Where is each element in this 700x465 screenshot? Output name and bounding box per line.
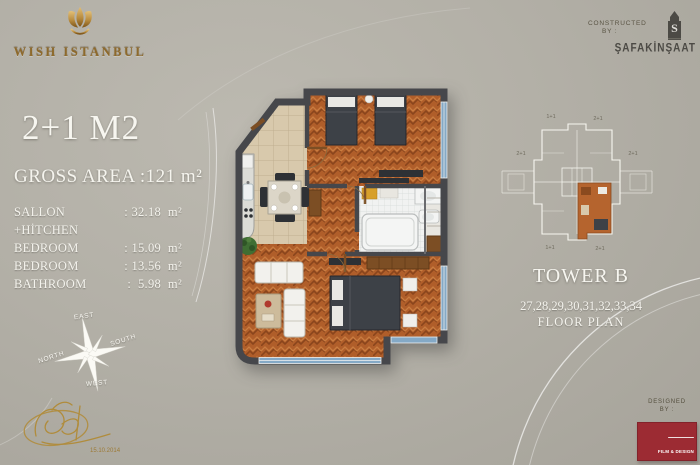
spec-row: BEDROOM : 15.09 m² [14,239,182,257]
spec-row: SALLON +HİTCHEN : 32.18 m² [14,203,182,239]
designer-logo: FILM & DESIGN [637,422,697,461]
constructed-by: CONSTRUCTED BY : [588,20,646,36]
keyplan-unit-label: 2+1 [593,116,602,122]
room-area: : 13.56 m² [124,257,182,275]
designed-by: DESIGNED BY : [634,399,700,414]
room-label: BEDROOM [14,257,79,275]
designer-logo-script-line [668,437,694,438]
room-label: BEDROOM [14,239,79,257]
spec-row: BATHROOM : 5.98 m² [14,275,182,293]
room-spec-list: SALLON +HİTCHEN : 32.18 m² BEDROOM : 15.… [14,203,182,293]
compass-rose: EAST SOUTH NORTH WEST [46,310,138,400]
room-area: : 5.98 m² [127,275,182,293]
designed-by-line1: DESIGNED [634,399,700,407]
keyplan-unit-label: 2+1 [628,151,637,157]
designer-logo-text: FILM & DESIGN [658,437,694,458]
tower-caption: FLOOR PLAN [486,315,676,330]
brand-logo: WISH ISTANBUL [8,6,152,60]
tower-floors: 27,28,29,30,31,32,33,34 [486,299,676,314]
gross-area: GROSS AREA :121 m² [14,166,202,188]
designed-by-line2: BY : [634,407,700,415]
svg-text:S: S [671,21,678,35]
brand-name: WISH ISTANBUL [8,45,152,60]
highlighted-unit [578,183,611,239]
constructed-by-line1: CONSTRUCTED [588,20,646,28]
architect-signature: 15.10.2014 [18,396,152,460]
spec-row: BEDROOM : 13.56 m² [14,257,182,275]
builder-company-name: ŞAFAKİNŞAAT [606,42,696,55]
constructed-by-line2: BY : [602,28,646,36]
keyplan-unit-label: 1+1 [545,245,554,251]
tower-name: TOWER B [500,265,662,288]
brochure-canvas: WISH ISTANBUL 2+1 M2 GROSS AREA :121 m² … [0,0,700,465]
unit-title: 2+1 M2 [22,108,140,148]
room-label: SALLON +HİTCHEN [14,203,124,239]
keyplan-unit-label: 2+1 [595,246,604,252]
room-label: BATHROOM [14,275,87,293]
tower-key-plan: 1+1 2+1 2+1 2+1 1+1 2+1 [494,103,660,255]
tulip-logo-icon [62,6,98,38]
room-area: : 32.18 m² [124,203,182,239]
living-room [255,262,305,337]
room-area: : 15.09 m² [124,239,182,257]
floor-plan-graphic [229,86,457,390]
keyplan-unit-label: 1+1 [546,114,555,120]
signature-date: 15.10.2014 [90,448,121,454]
builder-logo-icon: S [664,11,685,42]
designer-company-name: FILM & DESIGN [658,449,694,454]
hall-cabinet [309,190,321,216]
keyplan-unit-label: 2+1 [516,151,525,157]
